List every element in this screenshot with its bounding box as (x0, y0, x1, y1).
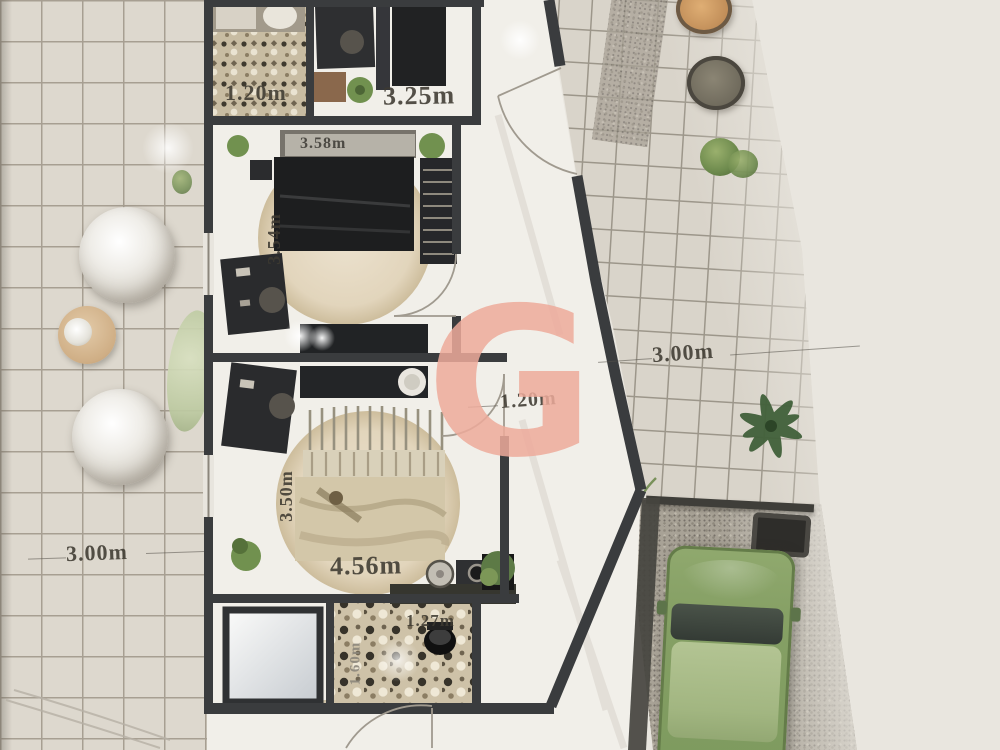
dimension-label-bedroom1-width: 3.58m (300, 136, 346, 152)
building-plan (0, 0, 1000, 750)
dimension-label-bedroom1-depth: 3.54m (265, 189, 283, 289)
dimension-label-yard-right: 3.00m (651, 340, 714, 366)
parked-car (656, 545, 796, 750)
shower-tray (226, 610, 320, 702)
dimension-label-bedroom2-depth: 3.50m (277, 446, 295, 546)
walkway-lines (6, 690, 170, 748)
dimension-label-hall-width: 1.20m (499, 388, 557, 412)
car-roof (667, 641, 782, 743)
dimension-label-bathroom-depth: 1.60m (349, 614, 364, 714)
car-mirror-right (790, 607, 801, 622)
dimension-label-bedroom2-width: 4.56m (330, 552, 403, 579)
dimension-label-yard-left: 3.00m (66, 541, 129, 565)
light-flare-dresser (284, 320, 316, 352)
car-hood-highlight (679, 558, 781, 603)
car-mirror-left (656, 600, 667, 615)
dimension-label-closet-width: 1.20m (225, 82, 287, 104)
light-flare-hall (500, 20, 540, 60)
dimension-label-bathroom-width: 1.27m (406, 612, 455, 629)
dimension-label-study-width: 3.25m (383, 82, 456, 109)
floor-plan-canvas: 1.20m 3.25m 3.58m 3.54m 3.00m 1.20m 3.00… (0, 0, 1000, 750)
car-windshield (670, 603, 784, 645)
